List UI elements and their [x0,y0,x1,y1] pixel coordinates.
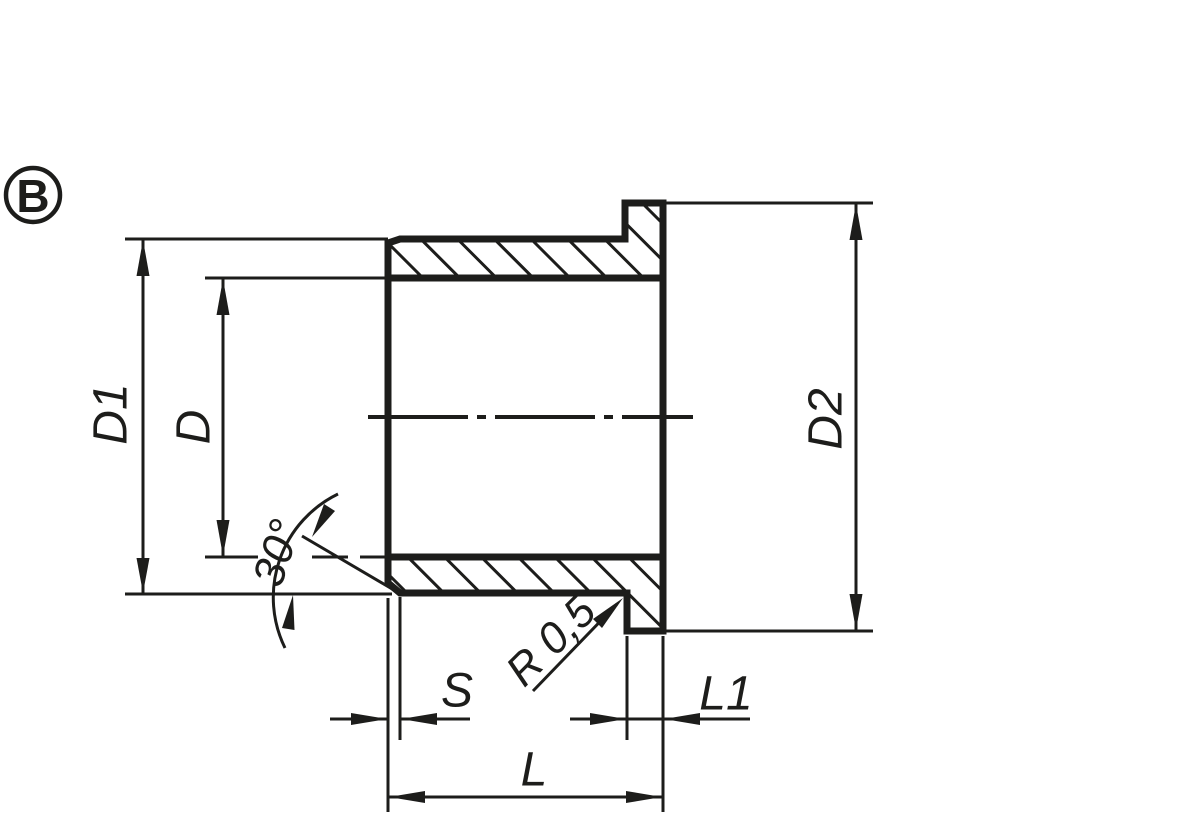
arrowhead-down [137,558,150,593]
technical-drawing-canvas: B D1 D D2 [0,0,1200,818]
arrowhead-down [850,594,863,630]
arrowhead-left [389,791,425,803]
dim-label-radius: R 0,5 [496,586,605,695]
arc-arrowhead-lower [282,595,295,630]
dimension-d: D [168,278,389,557]
arrowhead-left-pointing [401,713,437,725]
dim-label-l: L [521,744,548,797]
dim-label-d: D [168,410,221,445]
arrowhead-right-pointing [351,713,387,725]
dim-label-s: S [441,665,473,718]
dimension-d2: D2 [666,203,873,631]
view-label-text: B [16,170,49,222]
dimension-l1: L1 [570,636,753,740]
dim-label-l1: L1 [699,668,752,721]
dim-label-angle: 30° [243,514,310,592]
arrowhead-right [626,791,662,803]
arrowhead-left-pointing [664,713,700,725]
chamfer-extension-line [302,536,399,593]
dimension-fillet-radius: R 0,5 [496,586,623,695]
flanged-bushing-section-drawing: B D1 D D2 [0,0,1200,818]
arrowhead-down [217,520,230,556]
dimension-s: S [330,597,473,740]
dimension-d1: D1 [85,239,393,594]
view-label-badge: B [6,168,60,222]
arrowhead-right-pointing [590,713,626,725]
arrowhead-up [137,240,150,276]
dim-label-d2: D2 [800,388,853,449]
dimension-l: L [388,598,663,812]
arrowhead-up [217,279,230,315]
dimension-chamfer-angle: 30° [243,494,399,648]
dim-label-d1: D1 [85,383,138,444]
arrowhead-up [850,204,863,240]
